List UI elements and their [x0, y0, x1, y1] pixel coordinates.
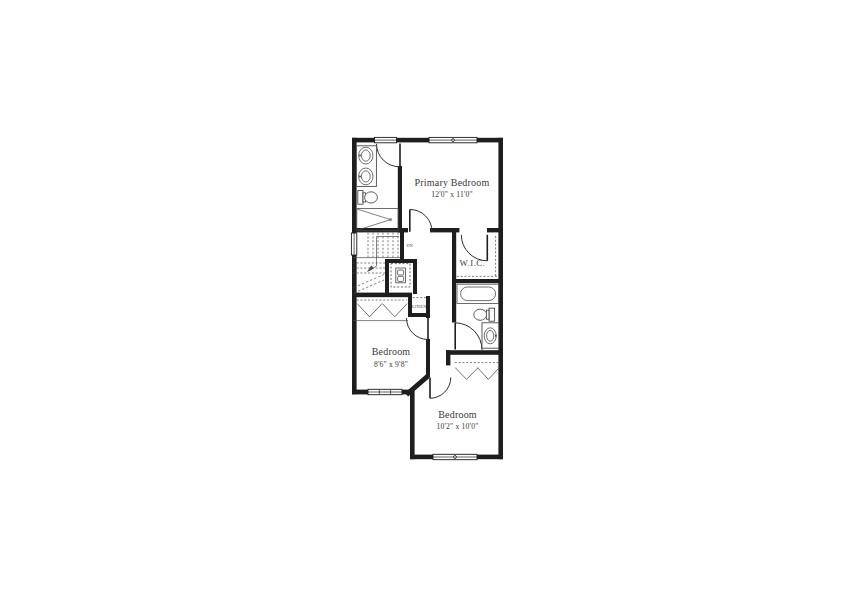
- window-stair-left: [351, 233, 356, 255]
- shower-icon: [357, 209, 398, 231]
- wall-mid-3: [487, 228, 503, 232]
- bedroom-bottom-dims: 10'2" x 10'0": [437, 422, 479, 431]
- wall-laundry-left: [385, 259, 389, 294]
- wall-bedroom-left-right: [426, 339, 430, 378]
- floor-plan-canvas: DN: [0, 0, 856, 598]
- wall-wic-bath-divider: [452, 279, 503, 283]
- window-bedroom-bottom: [433, 454, 477, 459]
- primary-bedroom-dims: 12'0" x 11'0": [431, 190, 473, 199]
- wic-label: W.I.C.: [460, 258, 486, 268]
- stairs-dn-label: DN: [407, 243, 413, 248]
- wall-laundry-right: [413, 259, 417, 294]
- door-primary-bedroom: [410, 209, 432, 231]
- bedroom-left-label: Bedroom: [372, 346, 411, 357]
- window-bedroom-left: [368, 389, 402, 394]
- bifold-doors-icon: [455, 368, 499, 380]
- closet-bedroom-left: [353, 300, 408, 321]
- door-wic: [461, 235, 487, 261]
- wall-hall-bath: [452, 232, 456, 323]
- wall-diagonal: [407, 376, 428, 394]
- primary-bedroom-label: Primary Bedroom: [415, 177, 490, 188]
- door-bedroom-left: [407, 318, 429, 340]
- wic-shelving: [457, 236, 498, 276]
- linen-label: LINEN: [412, 304, 427, 309]
- window-bath1: [375, 137, 397, 142]
- window-primary-bedroom: [429, 137, 477, 142]
- double-vanity-icon: [356, 146, 376, 187]
- wall-bedroom-bottom-left: [410, 391, 415, 459]
- stair-break-lines: [354, 275, 384, 294]
- floor-plan: DN: [0, 0, 856, 598]
- toilet-icon: [358, 191, 378, 205]
- linen-closet: LINEN: [412, 298, 427, 309]
- closet-bedroom-bottom: [455, 363, 500, 380]
- bifold-doors-icon: [357, 304, 407, 317]
- wall-closet-stub: [446, 350, 450, 365]
- vanity-sink-icon: [482, 323, 499, 348]
- door-bath1: [377, 144, 401, 167]
- door-bedroom-bottom: [430, 377, 451, 398]
- toilet-icon: [474, 308, 495, 321]
- utility-closet: [391, 264, 410, 287]
- primary-bath: [356, 146, 398, 231]
- hall-bath: [457, 284, 499, 348]
- wall-left: [352, 138, 357, 394]
- wall-stair-right: [400, 232, 404, 260]
- bedroom-left-dims: 8'6" x 9'8": [374, 360, 408, 369]
- wall-bath2-bottom: [446, 350, 503, 355]
- bathtub-icon: [457, 284, 499, 303]
- wall-mid-2: [430, 228, 459, 232]
- wall-under-stairs: [352, 293, 408, 298]
- door-bath2: [455, 323, 482, 350]
- wall-mid-1: [352, 228, 408, 232]
- bedroom-bottom-label: Bedroom: [438, 409, 477, 420]
- wall-laundry-top: [385, 259, 417, 263]
